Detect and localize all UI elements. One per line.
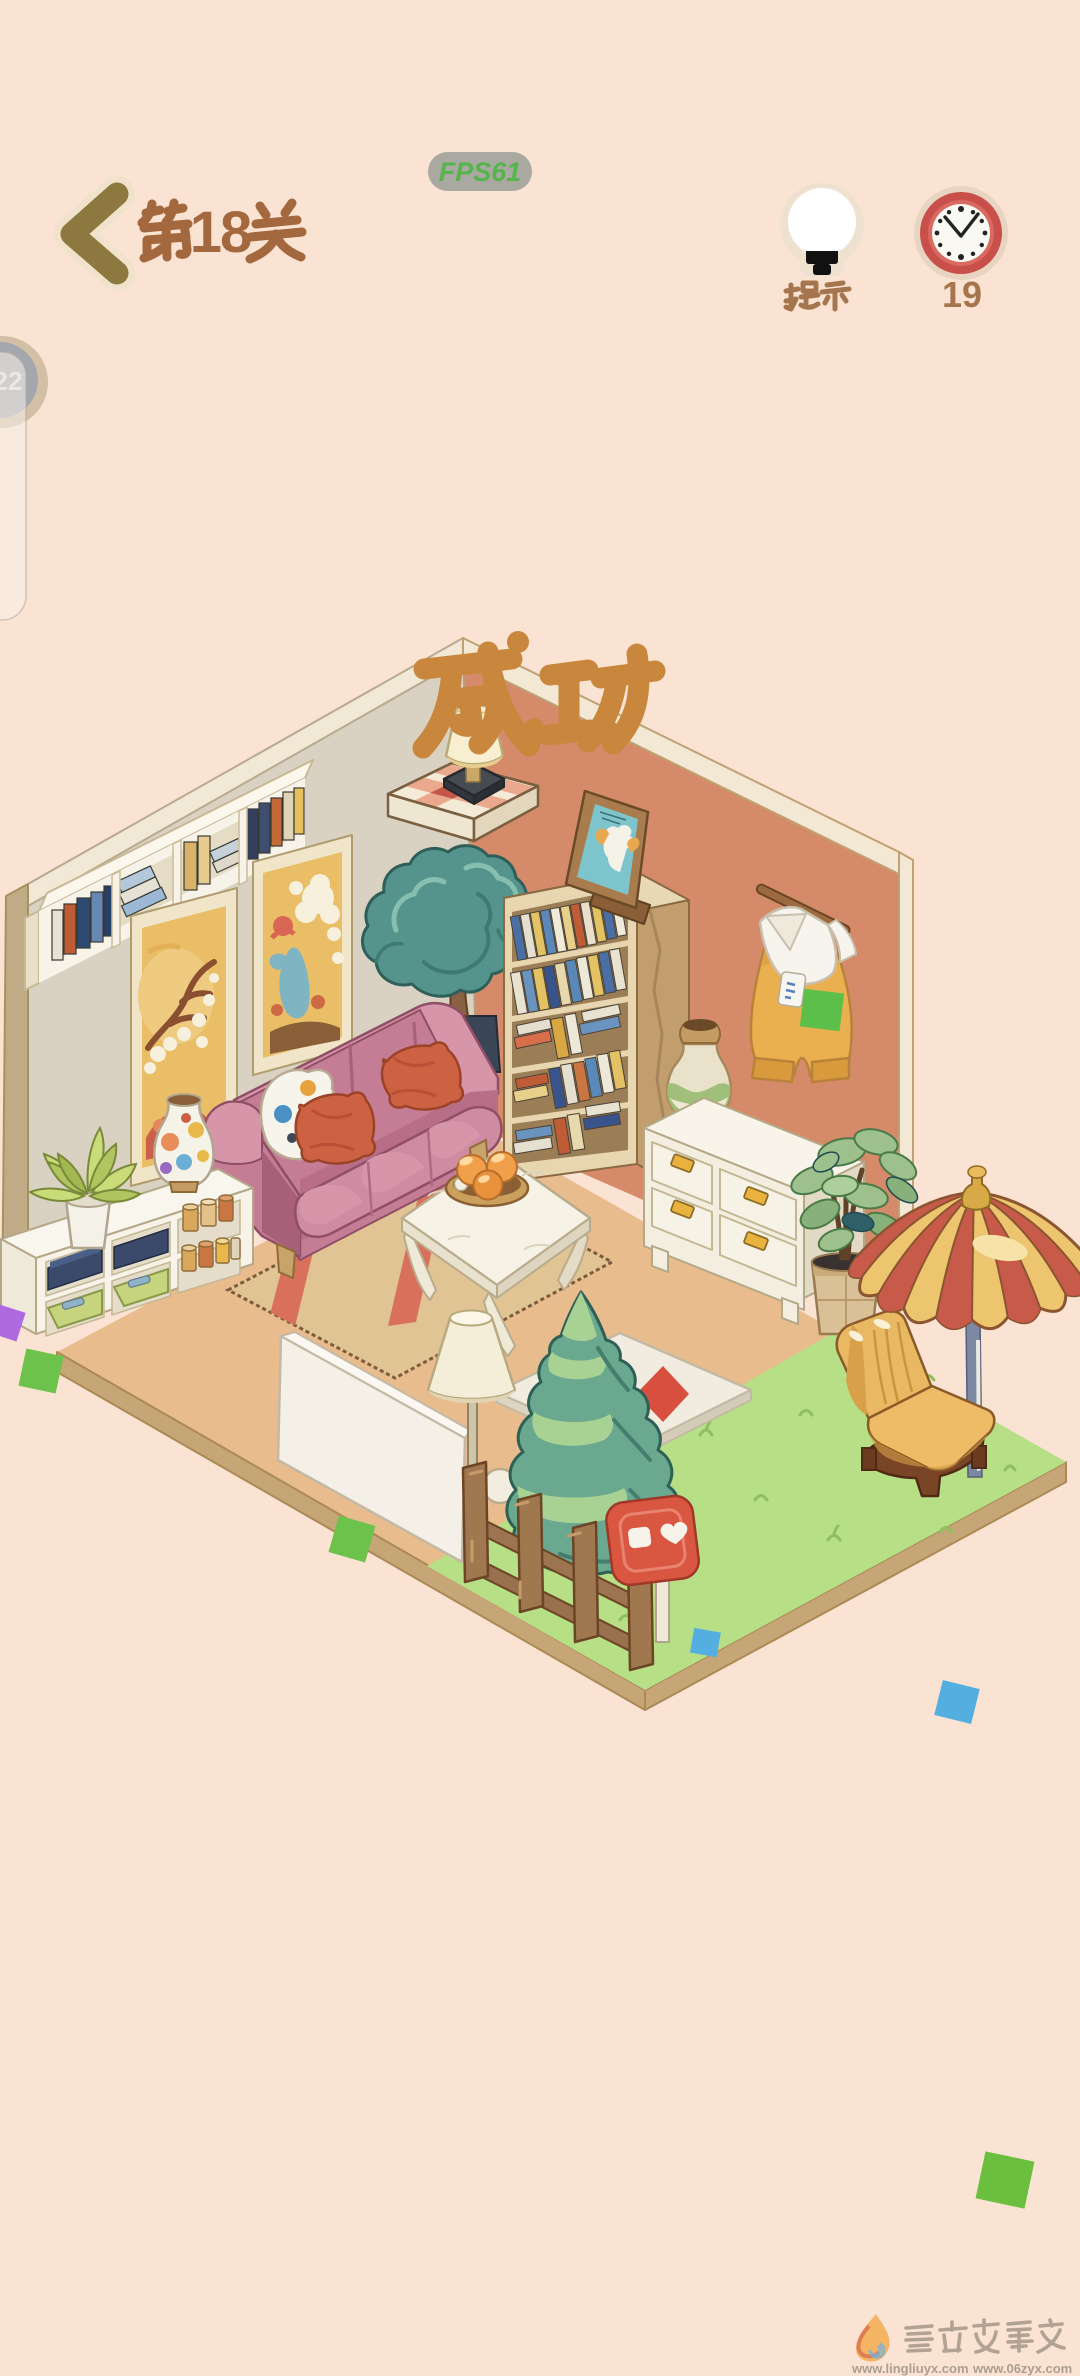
svg-text:FPS61: FPS61: [439, 157, 522, 187]
svg-text:www.06zyx.com: www.06zyx.com: [972, 2361, 1072, 2376]
svg-text:www.lingliuyx.com: www.lingliuyx.com: [851, 2361, 969, 2376]
svg-text:18: 18: [190, 200, 251, 265]
svg-text:19: 19: [942, 274, 982, 315]
